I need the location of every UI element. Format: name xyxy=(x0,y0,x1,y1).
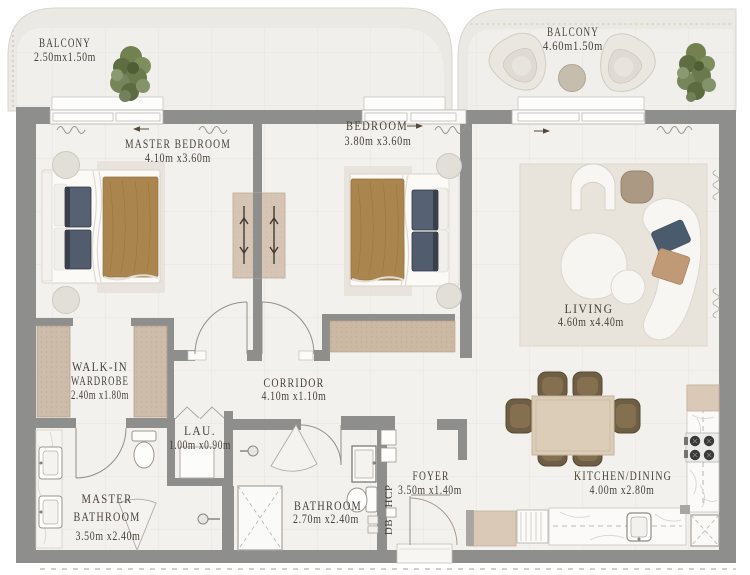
svg-text:WALK-IN: WALK-IN xyxy=(72,359,128,374)
svg-text:4.60m x4.40m: 4.60m x4.40m xyxy=(558,315,624,329)
svg-text:1.00m x0.90m: 1.00m x0.90m xyxy=(169,438,231,452)
svg-text:LAU.: LAU. xyxy=(184,423,216,438)
svg-text:BATHROOM: BATHROOM xyxy=(294,498,362,513)
svg-text:3.50m x1.40m: 3.50m x1.40m xyxy=(398,483,462,497)
svg-text:4.10m x3.60m: 4.10m x3.60m xyxy=(145,151,211,165)
svg-text:3.50m x2.40m: 3.50m x2.40m xyxy=(76,529,141,543)
svg-text:4.10m x1.10m: 4.10m x1.10m xyxy=(262,389,327,403)
svg-text:2.70m x2.40m: 2.70m x2.40m xyxy=(293,512,359,526)
svg-text:BALCONY: BALCONY xyxy=(547,24,599,39)
svg-text:2.50mx1.50m: 2.50mx1.50m xyxy=(34,50,96,64)
svg-text:KITCHEN/DINING: KITCHEN/DINING xyxy=(574,468,672,483)
svg-text:DB: DB xyxy=(383,519,395,535)
svg-text:4.60m1.50m: 4.60m1.50m xyxy=(543,39,603,53)
svg-text:BALCONY: BALCONY xyxy=(39,35,91,50)
svg-text:BATHROOM: BATHROOM xyxy=(74,509,141,524)
svg-text:3.80m x3.60m: 3.80m x3.60m xyxy=(345,134,412,148)
svg-text:2.40m x1.80m: 2.40m x1.80m xyxy=(71,388,129,402)
svg-text:LIVING: LIVING xyxy=(565,301,614,316)
svg-text:MASTER BEDROOM: MASTER BEDROOM xyxy=(125,136,231,151)
svg-text:BEDROOM: BEDROOM xyxy=(346,118,408,133)
svg-text:4.00m x2.80m: 4.00m x2.80m xyxy=(590,483,655,497)
svg-text:WARDROBE: WARDROBE xyxy=(71,373,129,388)
svg-text:CORRIDOR: CORRIDOR xyxy=(264,375,325,390)
svg-text:FOYER: FOYER xyxy=(413,468,450,483)
svg-text:MASTER: MASTER xyxy=(82,491,133,506)
svg-text:HCP: HCP xyxy=(383,485,395,508)
